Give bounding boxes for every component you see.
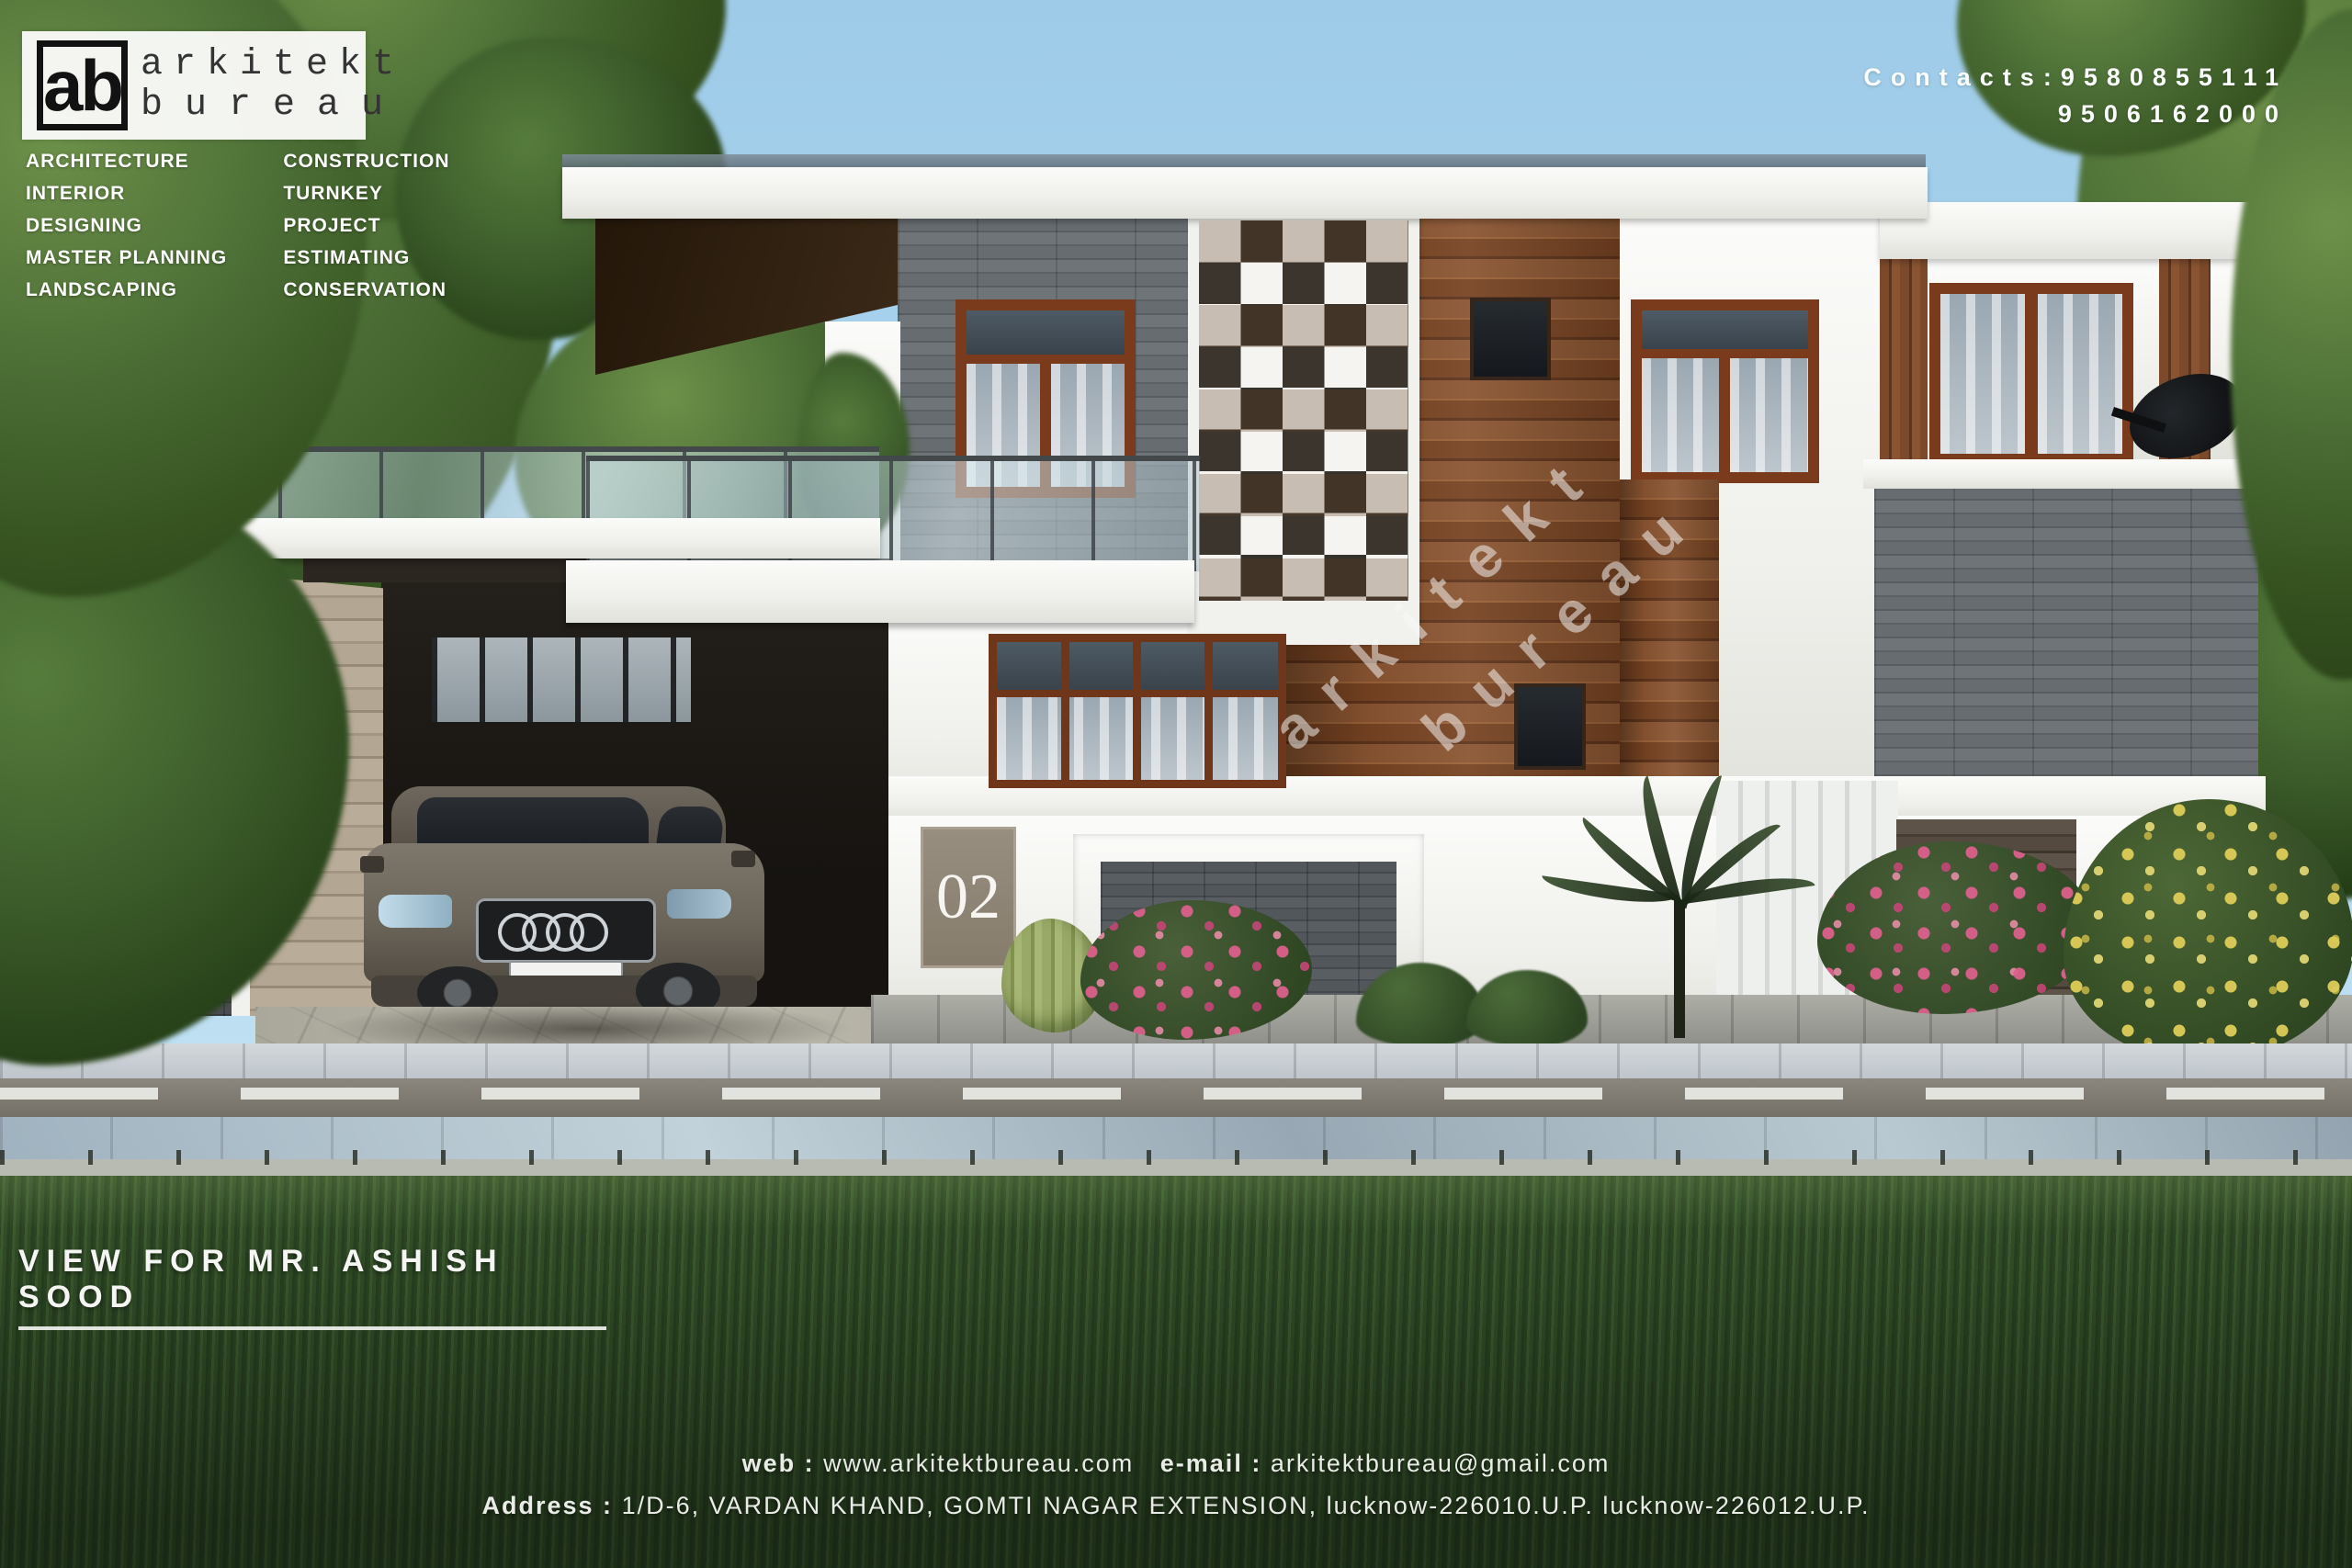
- window-curtains: [2038, 294, 2122, 454]
- service-item: CONSTRUCTION: [283, 145, 485, 177]
- address-label: Address :: [482, 1492, 614, 1519]
- house-number-plaque: 02: [921, 827, 1016, 968]
- balcony-fascia: [566, 560, 1194, 623]
- web-value: www.arkitektbureau.com: [823, 1450, 1134, 1477]
- window-mullion: [1204, 642, 1213, 780]
- tower-cap-band: [1863, 459, 2262, 489]
- services-column-right: CONSTRUCTION TURNKEY PROJECT ESTIMATING …: [283, 145, 485, 306]
- address-value: 1/D-6, VARDAN KHAND, GOMTI NAGAR EXTENSI…: [622, 1492, 1871, 1519]
- service-item: INTERIOR DESIGNING: [26, 177, 246, 242]
- car-headlight: [667, 889, 731, 919]
- road-lane-dashes: [0, 1088, 2352, 1100]
- footer-web-email: web : www.arkitektbureau.com e-mail : ar…: [0, 1450, 2352, 1478]
- wood-pillar: [1880, 259, 1928, 463]
- contact-line1: Contacts:9580855111: [1863, 59, 2288, 96]
- window-mullion: [1061, 642, 1069, 780]
- logo-name-line2: bureau: [141, 85, 405, 126]
- services-column-left: ARCHITECTURE INTERIOR DESIGNING MASTER P…: [26, 145, 246, 306]
- flat-roof-slab-right: [1880, 202, 2280, 259]
- email-label: e-mail :: [1160, 1450, 1262, 1477]
- palm-trunk: [1674, 900, 1685, 1038]
- logo-name: arkitekt bureau: [141, 45, 405, 126]
- car-mirror: [360, 856, 384, 873]
- service-item: ESTIMATING: [283, 242, 485, 274]
- footer-address: Address : 1/D-6, VARDAN KHAND, GOMTI NAG…: [0, 1492, 2352, 1520]
- audi-rings-emblem: [570, 913, 608, 952]
- flat-roof-slab-main: [562, 167, 1928, 219]
- logo-name-line1: arkitekt: [141, 45, 405, 85]
- checkerboard-jali-screen: [1199, 220, 1408, 601]
- architectural-render-scene: 02 ab arkitekt bureau: [0, 0, 2352, 1568]
- web-label: web :: [742, 1450, 815, 1477]
- car-mirror: [731, 851, 755, 867]
- service-item: TURNKEY PROJECT: [283, 177, 485, 242]
- service-item: LANDSCAPING: [26, 274, 246, 306]
- service-item: ARCHITECTURE: [26, 145, 246, 177]
- ground-floor-window-band: [989, 634, 1286, 788]
- house-number: 02: [936, 861, 1001, 934]
- contact-line2: 9506162000: [1863, 96, 2288, 132]
- caption-text: VIEW FOR MR. ASHISH SOOD: [18, 1244, 606, 1330]
- small-window-upper: [1470, 298, 1551, 380]
- caption-block: VIEW FOR MR. ASHISH SOOD: [18, 1244, 606, 1330]
- service-item: MASTER PLANNING: [26, 242, 246, 274]
- window-transom: [967, 310, 1125, 364]
- logo-abbr: ab: [43, 57, 121, 114]
- far-kerb: [0, 1043, 2352, 1080]
- window-mullion: [2025, 294, 2038, 454]
- email-value: arkitektbureau@gmail.com: [1271, 1450, 1611, 1477]
- services-list: ARCHITECTURE INTERIOR DESIGNING MASTER P…: [26, 145, 485, 306]
- garage-back-window: [432, 637, 691, 722]
- logo-ab-mark: ab: [37, 40, 128, 130]
- fan-palm-plant: [1571, 790, 1786, 1038]
- bedroom-window-right: [1929, 283, 2133, 465]
- suv-car: [364, 786, 764, 1020]
- service-item: CONSERVATION: [283, 274, 485, 306]
- logo: ab arkitekt bureau: [22, 31, 366, 140]
- window-curtains: [1940, 294, 2025, 454]
- edge-fence-ticks: [0, 1150, 2352, 1165]
- window-mullion: [1133, 642, 1141, 780]
- car-headlight: [379, 895, 452, 928]
- contact-numbers: Contacts:9580855111 9506162000: [1863, 59, 2288, 132]
